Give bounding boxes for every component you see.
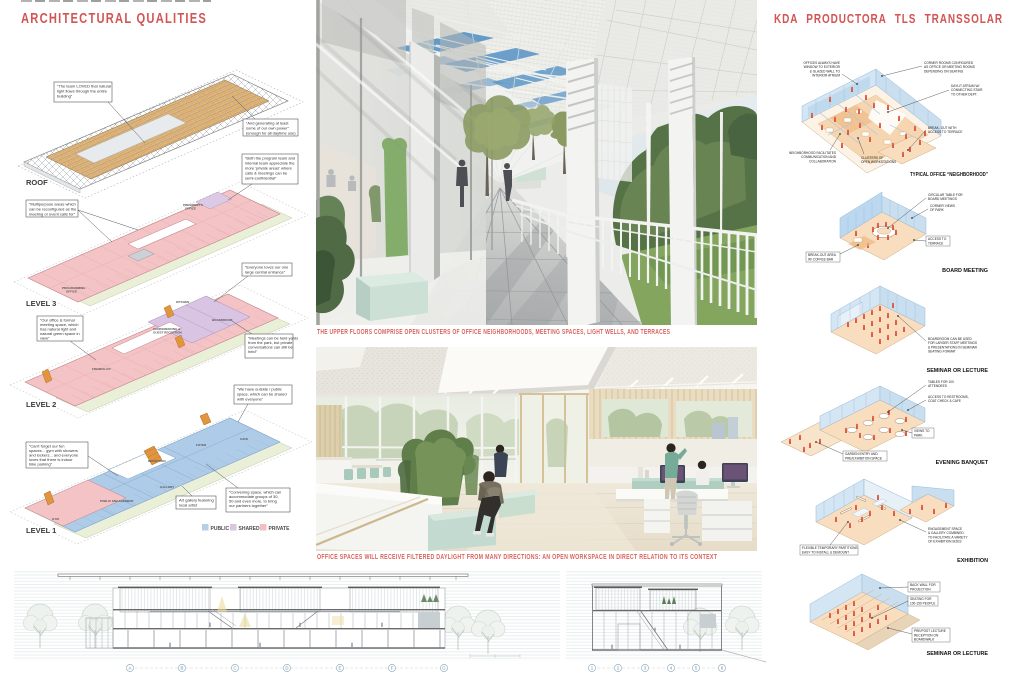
svg-text:PUBLIC ENGAGEMENT: PUBLIC ENGAGEMENT — [100, 499, 134, 503]
svg-text:GYM: GYM — [52, 517, 59, 521]
svg-text:PRIVATE: PRIVATE — [269, 526, 291, 532]
svg-text:ACCESS TO TERRACE: ACCESS TO TERRACE — [928, 130, 962, 134]
svg-text:OF PARK: OF PARK — [930, 208, 945, 212]
svg-text:LEVEL 3: LEVEL 3 — [26, 299, 56, 308]
svg-text:FINANCE A/T: FINANCE A/T — [92, 367, 111, 371]
svg-text:G: G — [442, 666, 446, 671]
svg-text:PARK: PARK — [914, 433, 923, 437]
svg-text:100-150 PEOPLE: 100-150 PEOPLE — [910, 601, 935, 605]
svg-text:EASY TO INSTALL & DEMOUNT: EASY TO INSTALL & DEMOUNT — [802, 550, 849, 554]
svg-text:BOARD MEETING: BOARD MEETING — [942, 268, 988, 274]
svg-text:COAT CHECK & CAFE: COAT CHECK & CAFE — [928, 399, 961, 403]
svg-text:E: E — [339, 666, 342, 671]
svg-text:ROOF: ROOF — [26, 178, 48, 187]
svg-text:building”: building” — [57, 94, 73, 99]
svg-text:COLLABORATION: COLLABORATION — [809, 159, 837, 163]
svg-text:semi-confidential”: semi-confidential” — [245, 176, 277, 181]
svg-text:bike parking”: bike parking” — [29, 462, 53, 467]
svg-text:(enough for all daytime use): (enough for all daytime use) — [246, 131, 296, 136]
svg-text:ATTENDEES: ATTENDEES — [928, 384, 947, 388]
svg-text:our partners together”: our partners together” — [229, 503, 268, 508]
svg-text:with everyone”: with everyone” — [237, 397, 264, 402]
svg-text:BOARD MEETINGS: BOARD MEETINGS — [928, 197, 957, 201]
svg-text:INTERIOR ATRIUM: INTERIOR ATRIUM — [812, 74, 840, 78]
svg-text:OFFICE: OFFICE — [66, 290, 77, 294]
svg-text:EVENING BANQUET: EVENING BANQUET — [936, 460, 989, 466]
svg-text:PUBLIC: PUBLIC — [211, 526, 230, 532]
svg-text:FOYER: FOYER — [196, 443, 207, 447]
svg-text:held”: held” — [248, 349, 258, 354]
svg-text:GUEST RECEPTION: GUEST RECEPTION — [153, 331, 182, 335]
svg-text:BOARDROOM: BOARDROOM — [212, 318, 233, 322]
svg-text:CAFE: CAFE — [240, 437, 248, 441]
svg-text:SEMINAR OR LECTURE: SEMINAR OR LECTURE — [927, 651, 989, 657]
svg-text:C: C — [233, 666, 236, 671]
svg-text:TERRACE: TERRACE — [928, 241, 943, 245]
svg-text:OPEN WORKSTATIONS: OPEN WORKSTATIONS — [861, 160, 896, 164]
svg-text:TYPICAL OFFICE “NEIGHBORHOOD”: TYPICAL OFFICE “NEIGHBORHOOD” — [910, 172, 988, 178]
svg-text:W/ COFFEE BAR: W/ COFFEE BAR — [808, 257, 834, 261]
svg-text:GALLERY: GALLERY — [160, 485, 174, 489]
svg-text:LEVEL 2: LEVEL 2 — [26, 400, 56, 409]
svg-text:F: F — [391, 666, 394, 671]
svg-text:OF EXHIBITION SIZES: OF EXHIBITION SIZES — [928, 540, 961, 544]
svg-text:B: B — [181, 666, 184, 671]
svg-text:SHARED: SHARED — [239, 526, 261, 532]
svg-text:local artist: local artist — [179, 503, 198, 508]
svg-text:SEATING FORMAT: SEATING FORMAT — [928, 350, 956, 354]
svg-text:PRE/EXHIBITION SPACE: PRE/EXHIBITION SPACE — [845, 456, 882, 460]
svg-text:DEPENDING ON SEATING: DEPENDING ON SEATING — [924, 69, 964, 73]
svg-text:D: D — [285, 666, 288, 671]
svg-text:TO OTHER DEPT.: TO OTHER DEPT. — [951, 92, 977, 96]
svg-text:KITCHEN: KITCHEN — [176, 300, 189, 304]
svg-text:large central entrance”: large central entrance” — [245, 270, 286, 275]
svg-text:EXHIBITION: EXHIBITION — [957, 558, 988, 564]
svg-text:OFFICE: OFFICE — [185, 207, 196, 211]
svg-text:PROJECTION: PROJECTION — [910, 587, 931, 591]
svg-text:LEVEL 1: LEVEL 1 — [26, 526, 56, 535]
svg-text:A: A — [129, 666, 132, 671]
svg-text:view”: view” — [40, 336, 50, 341]
svg-text:RECEPTION: RECEPTION — [148, 459, 166, 463]
svg-text:SEMINAR OR LECTURE: SEMINAR OR LECTURE — [927, 368, 989, 374]
svg-text:BOARDWALK: BOARDWALK — [914, 638, 935, 642]
svg-text:meeting or event calls for”: meeting or event calls for” — [29, 212, 76, 217]
